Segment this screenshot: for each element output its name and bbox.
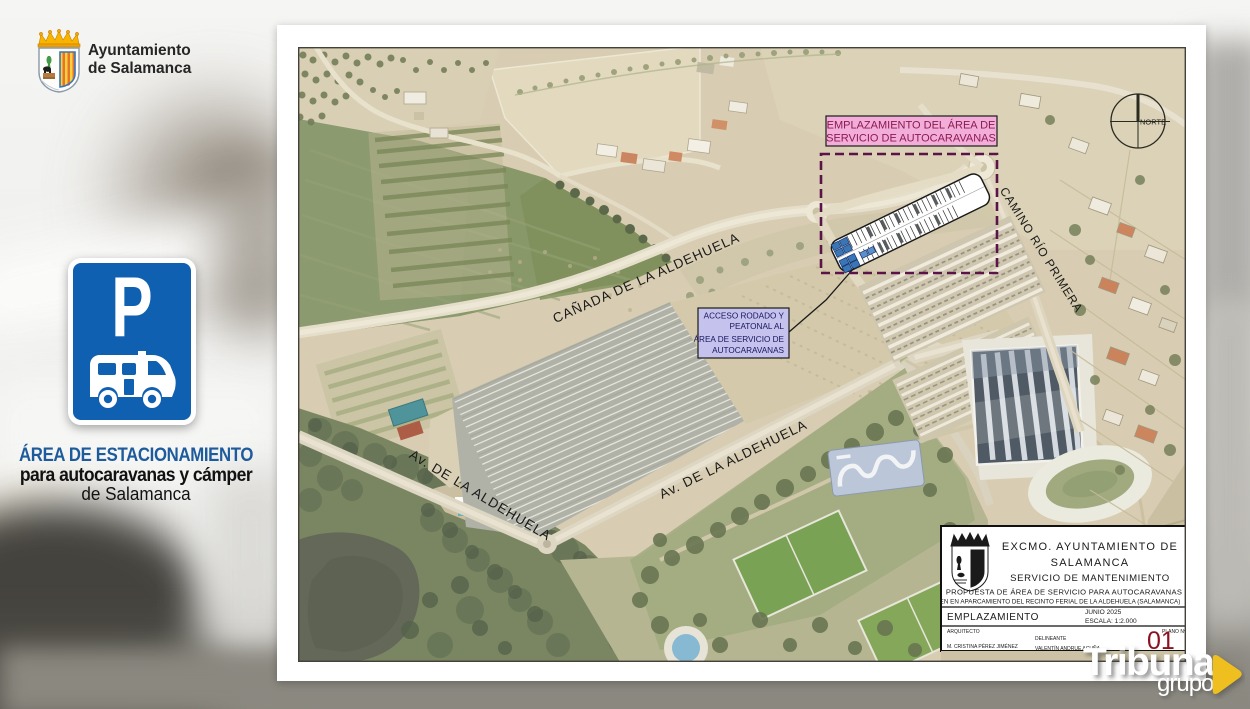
svg-text:EN EN APARCAMIENTO DEL RECINTO: EN EN APARCAMIENTO DEL RECINTO FERIAL DE…: [940, 599, 1181, 606]
svg-text:EMPLAZAMIENTO DEL ÁREA DE: EMPLAZAMIENTO DEL ÁREA DE: [827, 119, 996, 132]
svg-text:AUTOCARAVANAS: AUTOCARAVANAS: [712, 346, 784, 355]
svg-text:ACCESO RODADO Y: ACCESO RODADO Y: [704, 312, 785, 321]
svg-text:ÁREA DE SERVICIO DE: ÁREA DE SERVICIO DE: [694, 334, 785, 344]
svg-text:JUNIO 2025: JUNIO 2025: [1085, 609, 1122, 616]
svg-text:EMPLAZAMIENTO: EMPLAZAMIENTO: [947, 612, 1039, 623]
svg-text:ARQUITECTO: ARQUITECTO: [947, 629, 980, 635]
svg-text:PEATONAL AL: PEATONAL AL: [730, 322, 785, 331]
svg-text:EXCMO. AYUNTAMIENTO DE: EXCMO. AYUNTAMIENTO DE: [1002, 541, 1178, 553]
svg-text:PROPUESTA DE ÁREA DE SERVICIO: PROPUESTA DE ÁREA DE SERVICIO PARA AUTOC…: [946, 588, 1182, 597]
svg-text:M. CRISTINA PÉREZ JIMÉNEZ: M. CRISTINA PÉREZ JIMÉNEZ: [947, 643, 1018, 650]
svg-text:DELINEANTE: DELINEANTE: [1035, 636, 1067, 642]
svg-text:SERVICIO DE MANTENIMIENTO: SERVICIO DE MANTENIMIENTO: [1010, 573, 1170, 584]
svg-text:SERVICIO DE AUTOCARAVANAS: SERVICIO DE AUTOCARAVANAS: [826, 133, 996, 145]
svg-text:SALAMANCA: SALAMANCA: [1051, 557, 1130, 569]
svg-text:NORTE: NORTE: [1140, 118, 1166, 127]
svg-text:ESCALA: 1:2.000: ESCALA: 1:2.000: [1085, 618, 1137, 625]
